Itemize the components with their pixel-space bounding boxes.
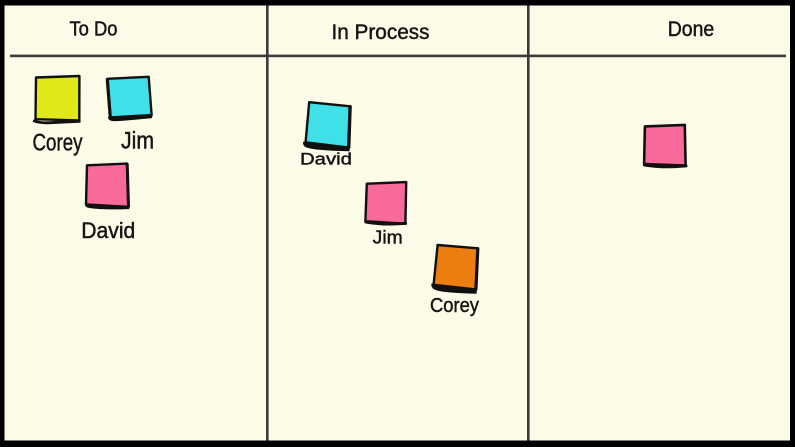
svg-text:Done: Done [668,18,715,41]
svg-text:To Do: To Do [70,19,118,41]
svg-text:Jim: Jim [121,128,154,155]
svg-text:In Process: In Process [332,21,430,44]
svg-text:David: David [300,150,352,169]
svg-text:David: David [81,218,135,243]
svg-text:Jim: Jim [373,228,403,248]
svg-text:Corey: Corey [430,294,480,317]
svg-text:Corey: Corey [33,130,83,157]
